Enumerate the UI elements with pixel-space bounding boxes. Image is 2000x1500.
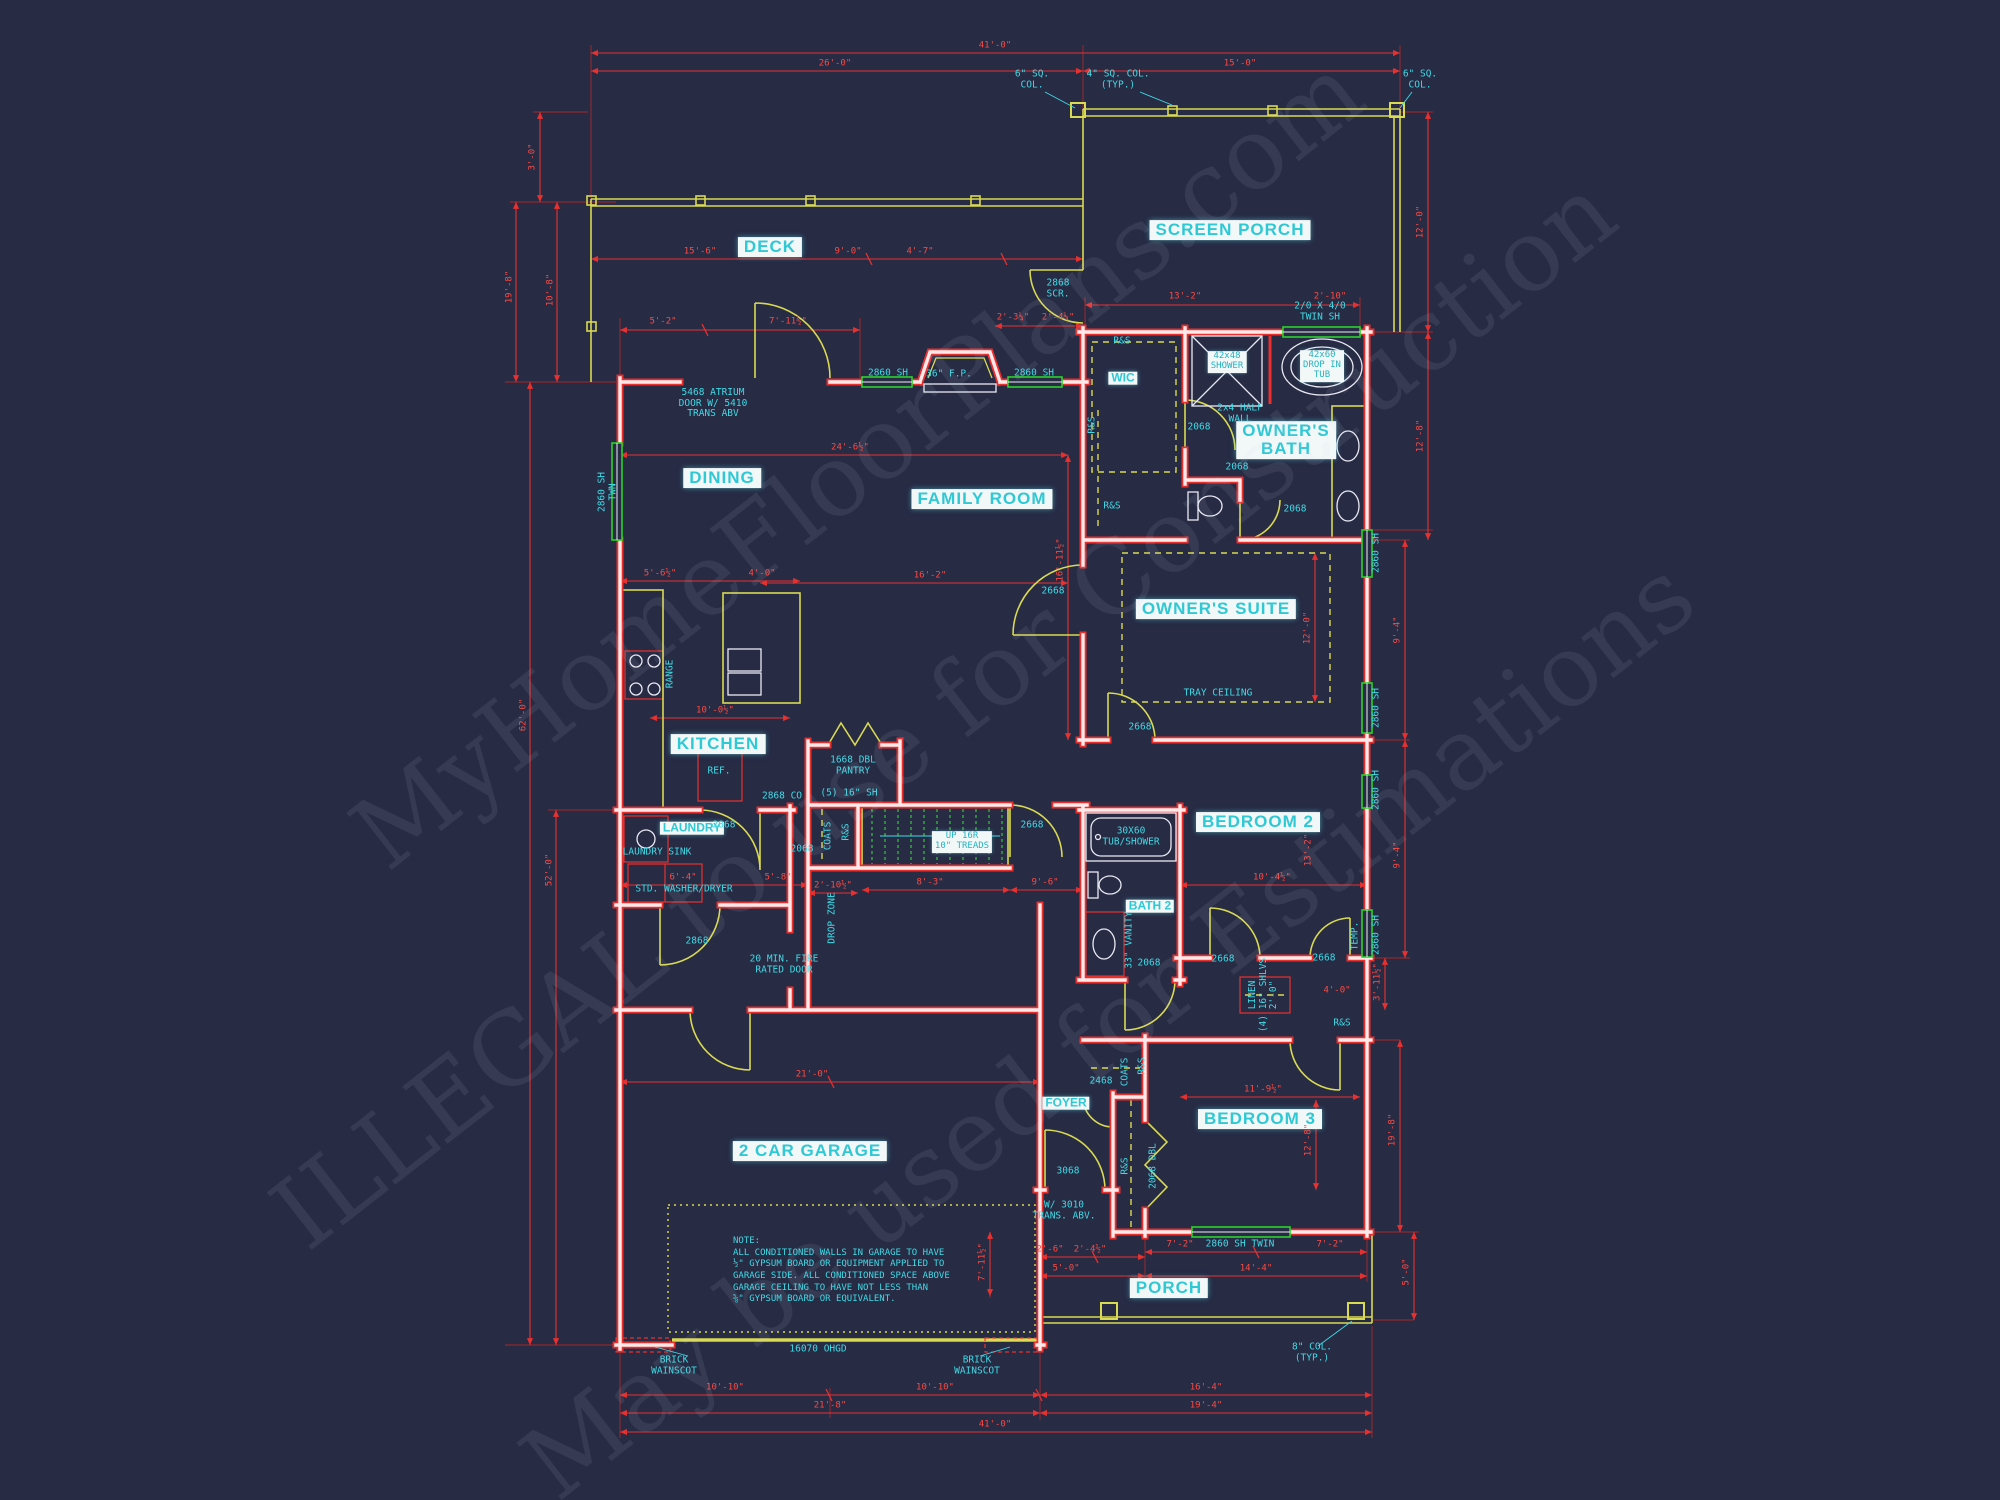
- dashed-millwork: [668, 342, 1330, 1332]
- kitchen-counters: [622, 406, 1367, 866]
- leader-lines: [655, 92, 1412, 1356]
- deck-and-porch-rails: [587, 103, 1404, 1340]
- floor-plan-drawing: [0, 0, 2000, 1500]
- windows: [612, 327, 1372, 1237]
- walls: [616, 328, 1371, 1349]
- casework-red: [616, 336, 1290, 1352]
- stairs: [872, 809, 1002, 864]
- blueprint-canvas: DECKSCREEN PORCHDININGFAMILY ROOMKITCHEN…: [0, 0, 2000, 1500]
